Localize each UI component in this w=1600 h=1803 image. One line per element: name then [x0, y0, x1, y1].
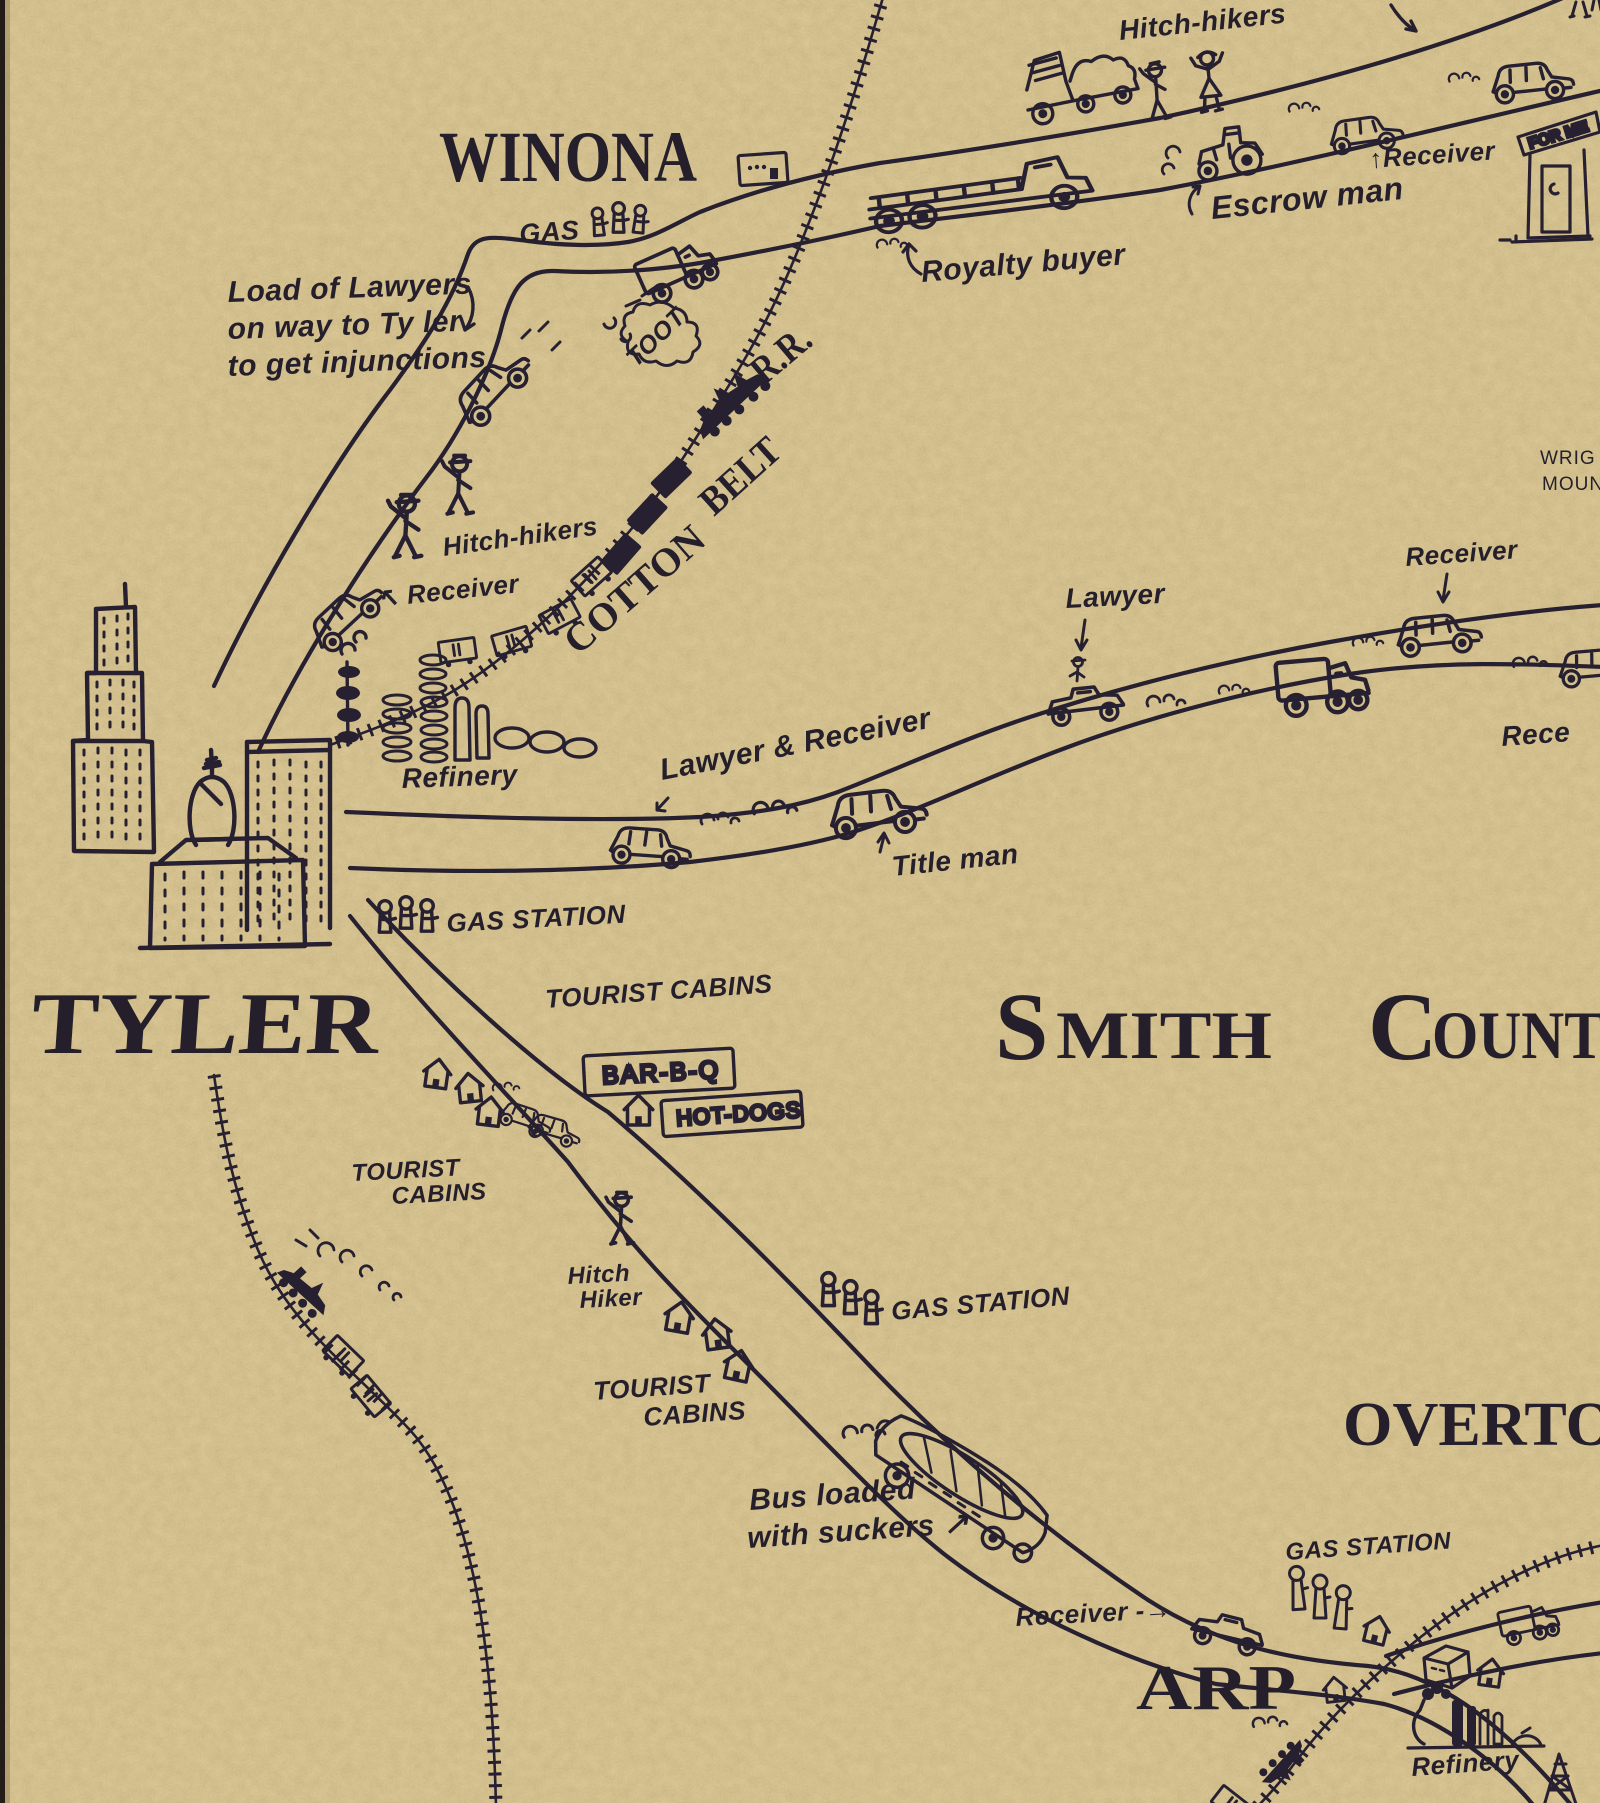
svg-text:C: C [1368, 973, 1437, 1080]
svg-text:WRIG: WRIG [1540, 448, 1596, 469]
svg-text:OUNTY: OUNTY [1432, 997, 1600, 1073]
svg-text:MITH: MITH [1056, 997, 1272, 1073]
svg-text:ARP: ARP [1136, 1652, 1296, 1723]
svg-text:OVERTON: OVERTON [1343, 1391, 1600, 1459]
svg-text:GAS: GAS [518, 215, 580, 249]
svg-text:Rece: Rece [1500, 716, 1571, 752]
svg-text:TYLER: TYLER [28, 975, 384, 1073]
svg-text:CABINS: CABINS [391, 1178, 487, 1210]
svg-text:Hiker: Hiker [579, 1284, 644, 1314]
svg-text:Lawyer: Lawyer [1065, 578, 1168, 614]
svg-text:WINONA: WINONA [439, 117, 697, 197]
svg-text:S: S [995, 973, 1048, 1080]
svg-text:Refinery: Refinery [401, 759, 519, 794]
svg-text:MOUN: MOUN [1542, 474, 1600, 495]
